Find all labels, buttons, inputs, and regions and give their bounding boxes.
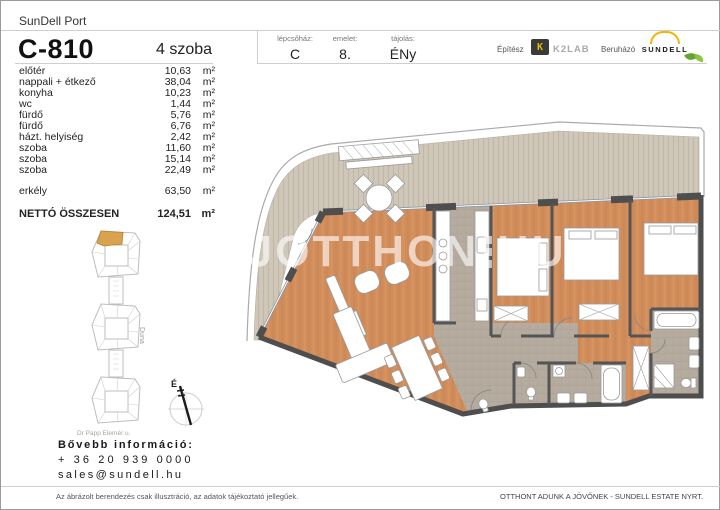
sink	[689, 337, 699, 350]
compass-north-label: É	[171, 379, 177, 389]
pillow	[539, 243, 547, 265]
pillow	[539, 269, 547, 291]
sink	[574, 393, 587, 403]
street-label: Dr Papp Elemér u.	[77, 430, 130, 437]
table-row-total: NETTÓ ÖSSZESEN124,51m²	[19, 209, 215, 220]
k2lab-glyph: K	[537, 42, 543, 53]
footer-tagline: OTTHONT ADUNK A JÖVŐNEK - SUNDELL ESTATE…	[500, 492, 703, 501]
river-label: Duna	[138, 327, 145, 344]
contact-email: sales@sundell.hu	[58, 470, 194, 481]
project-title: SunDell Port	[19, 14, 86, 28]
burner	[439, 239, 447, 247]
site-unit-highlight	[97, 231, 123, 246]
meta-orientation: tájolás: ÉNy	[371, 34, 435, 62]
pillow	[595, 231, 617, 239]
kitchen-sink	[477, 237, 487, 253]
bathtub	[654, 311, 699, 329]
shower	[654, 364, 674, 388]
wardrobe	[633, 346, 649, 390]
sink	[557, 393, 570, 403]
contact-block: Bővebb információ: + 36 20 939 0000 sale…	[58, 440, 194, 481]
orientation-value: ÉNy	[371, 46, 435, 62]
architect-name: K2LAB	[553, 44, 590, 55]
orientation-label: tájolás:	[371, 34, 435, 43]
floor-label: emelet:	[313, 34, 377, 43]
pillow	[569, 231, 591, 239]
header-rule-left	[15, 63, 213, 64]
pillow	[674, 226, 696, 234]
washing-machine	[553, 365, 565, 377]
burner	[439, 265, 447, 273]
contact-phone: + 36 20 939 0000	[58, 455, 194, 466]
floor-value: 8.	[313, 46, 377, 62]
unit-type: 4 szoba	[156, 41, 212, 59]
floorplan-datasheet: { "header": { "project": "SunDell Port",…	[0, 0, 720, 510]
table-row-balcony: erkély63,50m²	[19, 186, 215, 197]
burner	[439, 252, 447, 260]
developer-name: SUNDELL	[637, 45, 693, 54]
footer-rule	[1, 486, 720, 487]
developer-label: Beruházó	[601, 45, 635, 54]
bathtub	[601, 365, 622, 403]
k2lab-logo-icon: K	[531, 39, 549, 55]
sink	[689, 355, 699, 368]
table-row: szoba22,49m²	[19, 165, 215, 176]
wardrobe	[579, 304, 619, 320]
wardrobe	[494, 306, 528, 321]
header-rule-top	[1, 30, 720, 31]
compass-icon: É	[168, 379, 204, 427]
site-plan: Duna É	[71, 225, 221, 435]
site-block-3-court	[105, 391, 128, 412]
site-block-1-court	[105, 245, 128, 266]
sundell-logo: SUNDELL	[637, 31, 693, 54]
pillow	[649, 226, 671, 234]
footer-disclaimer: Az ábrázolt berendezés csak illusztráció…	[56, 492, 298, 501]
appliance	[477, 299, 487, 311]
toilet	[681, 378, 696, 388]
meta-floor: emelet: 8.	[313, 34, 377, 62]
contact-heading: Bővebb információ:	[58, 440, 194, 451]
room-area-table: előtér10,63m² nappali + étkező38,04m² ko…	[19, 66, 215, 220]
architect-label: Építész	[497, 45, 524, 54]
unit-id: C-810	[18, 34, 94, 65]
site-block-2-court	[105, 318, 128, 339]
floor-plan	[231, 61, 720, 486]
sundell-arc-icon	[650, 31, 680, 44]
header-divider-1	[257, 31, 258, 63]
sink	[517, 367, 525, 377]
